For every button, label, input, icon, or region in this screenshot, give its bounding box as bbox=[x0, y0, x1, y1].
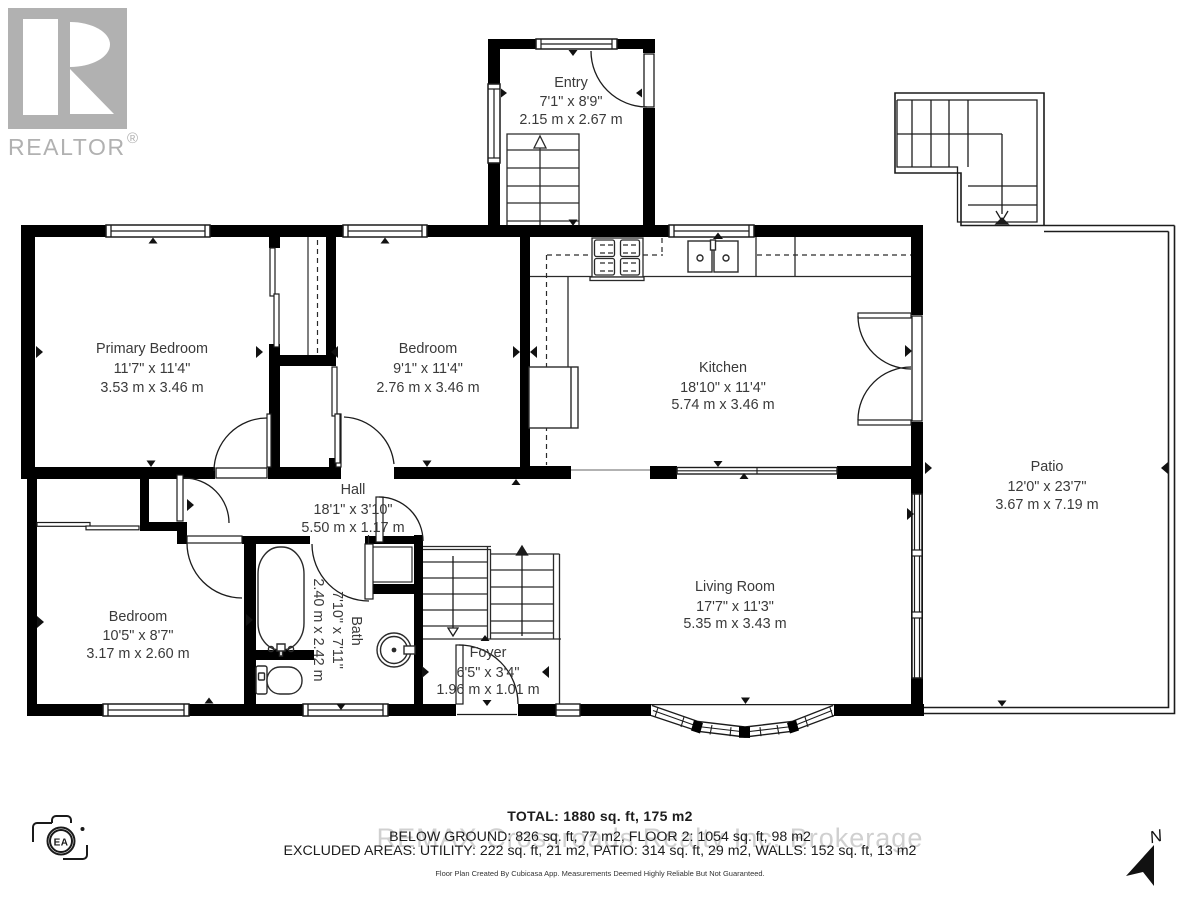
svg-text:®: ® bbox=[127, 130, 138, 147]
svg-text:17'7" x 11'3": 17'7" x 11'3" bbox=[696, 599, 774, 615]
svg-text:Foyer: Foyer bbox=[470, 645, 507, 661]
svg-text:Bath: Bath bbox=[348, 616, 364, 646]
svg-text:7'10" x 7'11": 7'10" x 7'11" bbox=[329, 591, 345, 669]
svg-text:18'1" x 3'10": 18'1" x 3'10" bbox=[314, 502, 393, 518]
svg-text:12'0" x 23'7": 12'0" x 23'7" bbox=[1008, 479, 1087, 495]
svg-text:Bedroom: Bedroom bbox=[399, 341, 457, 357]
svg-text:Primary Bedroom: Primary Bedroom bbox=[96, 341, 208, 357]
svg-text:18'10" x 11'4": 18'10" x 11'4" bbox=[680, 380, 766, 396]
svg-text:11'7" x 11'4": 11'7" x 11'4" bbox=[114, 361, 191, 377]
svg-text:Kitchen: Kitchen bbox=[699, 360, 747, 376]
svg-text:Hall: Hall bbox=[341, 482, 366, 498]
svg-text:EA: EA bbox=[54, 838, 69, 849]
svg-text:5.74 m x 3.46 m: 5.74 m x 3.46 m bbox=[671, 397, 774, 413]
svg-text:Floor Plan Created By Cubicasa: Floor Plan Created By Cubicasa App. Meas… bbox=[435, 869, 764, 878]
svg-text:EXCLUDED AREAS: UTILITY: 222 s: EXCLUDED AREAS: UTILITY: 222 sq. ft, 21 … bbox=[284, 843, 917, 859]
svg-text:Living Room: Living Room bbox=[695, 579, 775, 595]
svg-text:10'5" x 8'7": 10'5" x 8'7" bbox=[103, 628, 174, 644]
svg-text:2.40 m x 2.42 m: 2.40 m x 2.42 m bbox=[310, 578, 326, 681]
svg-text:7'1" x 8'9": 7'1" x 8'9" bbox=[540, 94, 603, 110]
svg-text:Bedroom: Bedroom bbox=[109, 609, 167, 625]
svg-text:TOTAL: 1880 sq. ft, 175 m2: TOTAL: 1880 sq. ft, 175 m2 bbox=[507, 808, 692, 824]
svg-text:6'5" x 3'4": 6'5" x 3'4" bbox=[457, 665, 520, 681]
svg-text:2.15 m x 2.67 m: 2.15 m x 2.67 m bbox=[519, 112, 622, 128]
svg-text:9'1" x 11'4": 9'1" x 11'4" bbox=[393, 361, 463, 377]
svg-text:1.96 m x 1.01 m: 1.96 m x 1.01 m bbox=[436, 682, 539, 698]
svg-text:REALTOR: REALTOR bbox=[8, 134, 126, 160]
svg-text:5.50 m x 1.17 m: 5.50 m x 1.17 m bbox=[301, 520, 404, 536]
svg-text:5.35 m x 3.43 m: 5.35 m x 3.43 m bbox=[683, 616, 786, 632]
svg-text:3.67 m x 7.19 m: 3.67 m x 7.19 m bbox=[995, 497, 1098, 513]
svg-text:Patio: Patio bbox=[1031, 459, 1064, 475]
svg-text:3.53 m x 3.46 m: 3.53 m x 3.46 m bbox=[100, 380, 203, 396]
svg-text:2.76 m x 3.46 m: 2.76 m x 3.46 m bbox=[376, 380, 479, 396]
svg-text:Entry: Entry bbox=[554, 75, 588, 91]
svg-text:3.17 m x 2.60 m: 3.17 m x 2.60 m bbox=[86, 646, 189, 662]
